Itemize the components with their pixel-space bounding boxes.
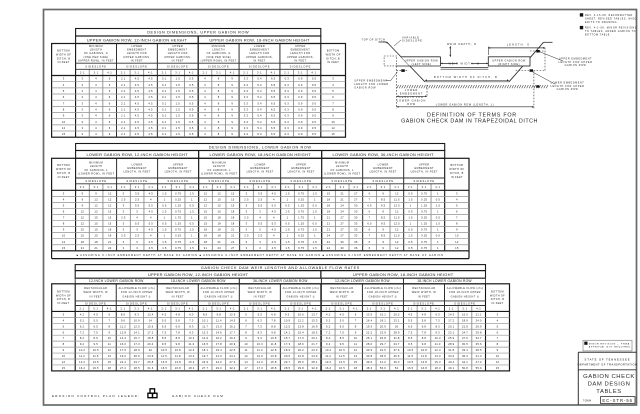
svg-text:20.2: 20.2 bbox=[394, 312, 400, 316]
svg-text:EROSION CONTROL PLAN LEGEND:: EROSION CONTROL PLAN LEGEND: bbox=[52, 394, 140, 398]
svg-text:4: 4 bbox=[95, 114, 97, 118]
svg-text:11: 11 bbox=[354, 342, 357, 346]
svg-text:1.5: 1.5 bbox=[162, 191, 167, 195]
svg-text:FOR 18-INCH UPPER: FOR 18-INCH UPPER bbox=[367, 291, 399, 294]
svg-text:8: 8 bbox=[245, 330, 247, 334]
svg-text:SIDESLOPE: SIDESLOPE bbox=[290, 64, 311, 68]
svg-text:9: 9 bbox=[231, 95, 233, 99]
svg-text:DITCH, B: DITCH, B bbox=[326, 57, 340, 60]
svg-text:6: 6 bbox=[109, 107, 111, 111]
svg-text:2:1: 2:1 bbox=[121, 307, 126, 311]
svg-text:13.8: 13.8 bbox=[421, 360, 427, 364]
svg-text:4.5: 4.5 bbox=[135, 107, 140, 111]
svg-text:LOWER: LOWER bbox=[131, 45, 142, 48]
svg-text:4.8: 4.8 bbox=[422, 312, 427, 316]
svg-text:39.6: 39.6 bbox=[366, 360, 372, 364]
svg-text:BOTTOM WIDTH OF DITCH, B: BOTTOM WIDTH OF DITCH, B bbox=[434, 76, 498, 79]
svg-text:2:1: 2:1 bbox=[326, 185, 331, 189]
svg-text:LOWER GABION ROW, 12-INCH GABI: LOWER GABION ROW, 12-INCH GABION HEIGHT bbox=[86, 152, 188, 157]
svg-text:2:1: 2:1 bbox=[326, 307, 331, 311]
svg-text:4.5: 4.5 bbox=[149, 246, 154, 250]
svg-text:18.1: 18.1 bbox=[202, 348, 208, 352]
svg-text:4:1: 4:1 bbox=[271, 185, 276, 189]
svg-text:4.5: 4.5 bbox=[135, 101, 140, 105]
svg-text:9: 9 bbox=[332, 114, 334, 118]
svg-text:MINIMUM: MINIMUM bbox=[89, 45, 103, 48]
svg-text:3.3: 3.3 bbox=[244, 132, 249, 136]
svg-text:6: 6 bbox=[369, 240, 371, 244]
svg-text:MINOR REVISION -- FHWA: MINOR REVISION -- FHWA bbox=[589, 342, 630, 345]
svg-text:6: 6 bbox=[369, 228, 371, 232]
svg-text:11.5: 11.5 bbox=[394, 216, 400, 220]
svg-text:3:1: 3:1 bbox=[462, 307, 467, 311]
svg-text:3: 3 bbox=[63, 77, 65, 81]
svg-text:6.3: 6.3 bbox=[258, 318, 263, 322]
svg-text:9: 9 bbox=[497, 348, 499, 352]
svg-text:0.9: 0.9 bbox=[298, 132, 303, 136]
svg-text:BOTTOM TABLE.: BOTTOM TABLE. bbox=[585, 34, 611, 37]
svg-text:24: 24 bbox=[217, 246, 221, 250]
svg-text:29.0: 29.0 bbox=[216, 366, 222, 370]
svg-text:9.3: 9.3 bbox=[435, 330, 440, 334]
svg-text:14.1: 14.1 bbox=[284, 330, 290, 334]
svg-text:0.1: 0.1 bbox=[162, 114, 167, 118]
svg-text:21.8: 21.8 bbox=[298, 354, 304, 358]
svg-text:4:1: 4:1 bbox=[271, 307, 276, 311]
svg-text:12: 12 bbox=[395, 191, 399, 195]
svg-text:11: 11 bbox=[108, 342, 111, 346]
svg-text:8: 8 bbox=[218, 89, 220, 93]
svg-text:6.5: 6.5 bbox=[271, 101, 276, 105]
svg-text:3:1: 3:1 bbox=[257, 71, 262, 75]
svg-text:16.8: 16.8 bbox=[421, 366, 427, 370]
svg-text:4.5: 4.5 bbox=[148, 83, 153, 87]
svg-text:12: 12 bbox=[244, 354, 248, 358]
svg-text:4: 4 bbox=[204, 77, 206, 81]
svg-text:4: 4 bbox=[204, 101, 206, 105]
svg-text:1: 1 bbox=[437, 210, 439, 214]
svg-text:2:1: 2:1 bbox=[244, 307, 249, 311]
svg-text:23.3: 23.3 bbox=[312, 348, 318, 352]
svg-text:0.5: 0.5 bbox=[313, 222, 318, 226]
svg-text:(RIGHT SIDE): (RIGHT SIDE) bbox=[498, 63, 520, 66]
svg-text:9.5: 9.5 bbox=[162, 342, 167, 346]
svg-text:0.5: 0.5 bbox=[313, 203, 318, 207]
svg-text:15.1: 15.1 bbox=[380, 312, 386, 316]
svg-text:25.9: 25.9 bbox=[448, 336, 454, 340]
svg-text:7.5: 7.5 bbox=[340, 330, 345, 334]
svg-text:5: 5 bbox=[245, 312, 247, 316]
svg-text:4: 4 bbox=[95, 126, 97, 130]
svg-text:3: 3 bbox=[123, 228, 125, 232]
svg-text:3.3: 3.3 bbox=[244, 83, 249, 87]
svg-text:30: 30 bbox=[354, 203, 358, 207]
svg-text:27: 27 bbox=[354, 191, 358, 195]
svg-text:0.5: 0.5 bbox=[189, 120, 194, 124]
svg-text:1.5: 1.5 bbox=[436, 222, 441, 226]
svg-text:6.8: 6.8 bbox=[271, 312, 276, 316]
svg-text:10.8: 10.8 bbox=[270, 336, 276, 340]
svg-text:27.2: 27.2 bbox=[120, 366, 126, 370]
svg-text:SIDESLOPE: SIDESLOPE bbox=[126, 64, 147, 68]
svg-text:4: 4 bbox=[136, 216, 138, 220]
svg-text:■ ASSUMING 9-INCH EMBEDMENT DE: ■ ASSUMING 9-INCH EMBEDMENT DEPTH AT BAS… bbox=[199, 254, 321, 257]
svg-text:5.4: 5.4 bbox=[257, 89, 262, 93]
svg-text:2.5: 2.5 bbox=[258, 234, 263, 238]
svg-text:EMBEDMENT: EMBEDMENT bbox=[291, 49, 311, 52]
svg-text:LENGTH, IN FEET: LENGTH, IN FEET bbox=[247, 171, 274, 174]
svg-text:11.5: 11.5 bbox=[161, 354, 167, 358]
svg-text:0.75: 0.75 bbox=[421, 210, 427, 214]
svg-text:WEIR WIDTH, W: WEIR WIDTH, W bbox=[330, 291, 355, 294]
svg-text:23.1: 23.1 bbox=[448, 330, 454, 334]
svg-text:3:1: 3:1 bbox=[298, 307, 303, 311]
svg-text:6: 6 bbox=[456, 210, 458, 214]
svg-text:12-INCH LOWER GABION ROW: 12-INCH LOWER GABION ROW bbox=[335, 279, 390, 283]
svg-text:25.0: 25.0 bbox=[298, 360, 304, 364]
svg-text:5.8: 5.8 bbox=[176, 318, 181, 322]
svg-text:12-INCH LOWER GABION ROW: 12-INCH LOWER GABION ROW bbox=[89, 279, 144, 283]
svg-text:18: 18 bbox=[217, 228, 221, 232]
svg-text:1: 1 bbox=[287, 216, 289, 220]
svg-text:3:1: 3:1 bbox=[93, 71, 98, 75]
svg-text:3: 3 bbox=[259, 246, 261, 250]
svg-text:0.5: 0.5 bbox=[190, 222, 195, 226]
svg-text:2.5: 2.5 bbox=[244, 197, 249, 201]
svg-text:LENGTH, IN FEET: LENGTH, IN FEET bbox=[288, 171, 315, 174]
svg-text:11.3: 11.3 bbox=[435, 342, 441, 346]
svg-text:19.2: 19.2 bbox=[120, 354, 126, 358]
svg-text:DITCH, B: DITCH, B bbox=[491, 298, 505, 301]
svg-text:15.3: 15.3 bbox=[435, 360, 441, 364]
svg-text:4: 4 bbox=[204, 126, 206, 130]
svg-text:1: 1 bbox=[287, 234, 289, 238]
svg-text:IN FEET: IN FEET bbox=[254, 295, 266, 298]
svg-text:IN FEET: IN FEET bbox=[90, 295, 102, 298]
svg-text:0.5: 0.5 bbox=[189, 114, 194, 118]
svg-text:4.5: 4.5 bbox=[148, 77, 153, 81]
svg-text:9: 9 bbox=[382, 210, 384, 214]
svg-text:2.1: 2.1 bbox=[121, 126, 126, 130]
svg-text:3:1: 3:1 bbox=[134, 71, 139, 75]
svg-text:12.5: 12.5 bbox=[394, 222, 400, 226]
svg-text:4: 4 bbox=[259, 216, 261, 220]
svg-text:5.5: 5.5 bbox=[135, 222, 140, 226]
svg-text:7: 7 bbox=[456, 216, 458, 220]
svg-text:4.5: 4.5 bbox=[148, 101, 153, 105]
svg-text:15: 15 bbox=[204, 222, 208, 226]
svg-text:14.5: 14.5 bbox=[229, 318, 235, 322]
svg-text:9: 9 bbox=[231, 83, 233, 87]
svg-text:8: 8 bbox=[109, 324, 111, 328]
svg-text:9.2: 9.2 bbox=[80, 342, 85, 346]
svg-text:0.5: 0.5 bbox=[436, 216, 441, 220]
svg-text:1: 1 bbox=[191, 216, 193, 220]
svg-text:18: 18 bbox=[327, 210, 331, 214]
svg-text:13.5: 13.5 bbox=[366, 312, 372, 316]
svg-text:15.3: 15.3 bbox=[188, 360, 194, 364]
svg-text:IN FEET: IN FEET bbox=[172, 59, 184, 62]
svg-text:17.6: 17.6 bbox=[120, 348, 126, 352]
svg-text:1.5: 1.5 bbox=[176, 89, 181, 93]
svg-text:21: 21 bbox=[231, 234, 235, 238]
svg-text:2:1: 2:1 bbox=[202, 71, 207, 75]
svg-text:9.5: 9.5 bbox=[381, 222, 386, 226]
svg-text:0.75: 0.75 bbox=[175, 240, 181, 244]
svg-text:4.5: 4.5 bbox=[94, 312, 99, 316]
svg-text:12: 12 bbox=[455, 240, 459, 244]
svg-text:4.5: 4.5 bbox=[149, 228, 154, 232]
svg-text:16.5: 16.5 bbox=[339, 366, 345, 370]
svg-text:6: 6 bbox=[63, 95, 65, 99]
svg-text:20.5: 20.5 bbox=[134, 354, 140, 358]
svg-text:6: 6 bbox=[109, 95, 111, 99]
svg-text:36: 36 bbox=[354, 246, 358, 250]
svg-text:1.5: 1.5 bbox=[176, 77, 181, 81]
svg-text:11: 11 bbox=[245, 348, 248, 352]
svg-text:4.2: 4.2 bbox=[326, 312, 331, 316]
svg-text:0.5: 0.5 bbox=[312, 107, 317, 111]
svg-text:13: 13 bbox=[108, 354, 112, 358]
svg-text:(UPPER ROW), IN FEET: (UPPER ROW), IN FEET bbox=[201, 59, 237, 62]
svg-text:18: 18 bbox=[217, 234, 221, 238]
svg-text:46.3: 46.3 bbox=[394, 360, 400, 364]
svg-text:3: 3 bbox=[82, 120, 84, 124]
svg-text:LOWER: LOWER bbox=[378, 163, 389, 166]
svg-text:3:1: 3:1 bbox=[216, 307, 221, 311]
svg-text:(LOWER ROW), IN FEET: (LOWER ROW), IN FEET bbox=[324, 172, 361, 175]
svg-text:10.3: 10.3 bbox=[435, 336, 441, 340]
svg-text:20.9: 20.9 bbox=[229, 342, 235, 346]
svg-text:5: 5 bbox=[456, 203, 458, 207]
svg-text:32.9: 32.9 bbox=[312, 366, 318, 370]
svg-text:24: 24 bbox=[327, 234, 331, 238]
svg-text:6.5: 6.5 bbox=[271, 126, 276, 130]
svg-text:EMBEDMENT: EMBEDMENT bbox=[250, 167, 270, 170]
svg-text:26.8: 26.8 bbox=[380, 336, 386, 340]
svg-text:4.5: 4.5 bbox=[135, 120, 140, 124]
svg-text:0.5: 0.5 bbox=[408, 240, 413, 244]
svg-text:10.5: 10.5 bbox=[339, 348, 345, 352]
svg-text:18: 18 bbox=[217, 222, 221, 226]
svg-text:1: 1 bbox=[314, 197, 316, 201]
svg-text:12: 12 bbox=[108, 197, 112, 201]
svg-text:15: 15 bbox=[455, 246, 459, 250]
svg-text:6: 6 bbox=[369, 191, 371, 195]
svg-text:GABION HEIGHT ①: GABION HEIGHT ① bbox=[122, 294, 151, 298]
svg-text:4:1: 4:1 bbox=[107, 185, 112, 189]
svg-text:9: 9 bbox=[382, 228, 384, 232]
svg-text:0.25: 0.25 bbox=[298, 234, 304, 238]
svg-text:IN FEET: IN FEET bbox=[327, 61, 339, 64]
svg-text:3: 3 bbox=[82, 126, 84, 130]
svg-text:15: 15 bbox=[108, 222, 112, 226]
svg-text:3: 3 bbox=[246, 222, 248, 226]
svg-text:50.8: 50.8 bbox=[462, 366, 468, 370]
svg-text:4:1: 4:1 bbox=[230, 71, 235, 75]
svg-text:8: 8 bbox=[63, 107, 65, 111]
svg-text:4.5: 4.5 bbox=[148, 126, 153, 130]
svg-text:21: 21 bbox=[327, 216, 331, 220]
svg-text:UPPER GABIONS,: UPPER GABIONS, bbox=[287, 56, 314, 59]
svg-text:4: 4 bbox=[497, 318, 499, 322]
svg-text:3: 3 bbox=[82, 95, 84, 99]
svg-text:7: 7 bbox=[63, 336, 65, 340]
svg-text:5.5: 5.5 bbox=[340, 318, 345, 322]
svg-text:24.9: 24.9 bbox=[312, 354, 318, 358]
svg-text:1.5: 1.5 bbox=[190, 240, 195, 244]
svg-text:2.1: 2.1 bbox=[121, 107, 126, 111]
svg-text:10: 10 bbox=[455, 234, 459, 238]
svg-text:(ONE PER SIDE): (ONE PER SIDE) bbox=[83, 56, 108, 59]
svg-text:1.5: 1.5 bbox=[285, 191, 290, 195]
svg-text:8: 8 bbox=[218, 107, 220, 111]
svg-text:12: 12 bbox=[395, 228, 399, 232]
svg-text:21: 21 bbox=[327, 228, 331, 232]
svg-text:0.75: 0.75 bbox=[421, 246, 427, 250]
svg-text:11.5: 11.5 bbox=[339, 354, 345, 358]
svg-text:8.3: 8.3 bbox=[258, 330, 263, 334]
svg-text:1: 1 bbox=[164, 216, 166, 220]
svg-text:3: 3 bbox=[63, 191, 65, 195]
svg-text:0.25: 0.25 bbox=[421, 216, 427, 220]
svg-text:4: 4 bbox=[63, 83, 65, 87]
svg-text:5.5: 5.5 bbox=[162, 318, 167, 322]
svg-text:3:1: 3:1 bbox=[134, 307, 139, 311]
svg-text:■ ASSUMING 9-INCH EMBEDMENT DE: ■ ASSUMING 9-INCH EMBEDMENT DEPTH AT BAS… bbox=[322, 254, 444, 257]
svg-text:18: 18 bbox=[204, 228, 208, 232]
svg-text:4.5: 4.5 bbox=[272, 228, 277, 232]
svg-text:22: 22 bbox=[149, 348, 153, 352]
svg-text:12.8: 12.8 bbox=[120, 330, 126, 334]
svg-text:6: 6 bbox=[332, 95, 334, 99]
svg-text:3:1: 3:1 bbox=[340, 185, 345, 189]
svg-text:1: 1 bbox=[437, 191, 439, 195]
svg-text:4: 4 bbox=[95, 120, 97, 124]
svg-text:7: 7 bbox=[332, 101, 334, 105]
svg-text:1.5: 1.5 bbox=[285, 246, 290, 250]
svg-text:6.5: 6.5 bbox=[271, 107, 276, 111]
svg-text:19.3: 19.3 bbox=[366, 324, 372, 328]
svg-text:0.75: 0.75 bbox=[421, 191, 427, 195]
svg-text:6.3: 6.3 bbox=[435, 312, 440, 316]
svg-text:15: 15 bbox=[217, 197, 221, 201]
svg-text:10: 10 bbox=[108, 336, 112, 340]
svg-text:1: 1 bbox=[437, 246, 439, 250]
svg-text:4.5: 4.5 bbox=[148, 95, 153, 99]
svg-text:LOWER GABION ROW, 36-INCH GABI: LOWER GABION ROW, 36-INCH GABION HEIGHT bbox=[333, 152, 435, 157]
svg-text:28.9: 28.9 bbox=[448, 342, 454, 346]
svg-text:IN FEET: IN FEET bbox=[172, 295, 184, 298]
svg-text:23.7: 23.7 bbox=[284, 360, 290, 364]
svg-text:21: 21 bbox=[217, 240, 221, 244]
svg-text:1.5: 1.5 bbox=[176, 120, 181, 124]
svg-text:LENGTH: LENGTH bbox=[212, 49, 225, 52]
svg-text:DITCH, B: DITCH, B bbox=[57, 172, 71, 175]
svg-text:4:1: 4:1 bbox=[353, 185, 358, 189]
svg-text:2.5: 2.5 bbox=[135, 234, 140, 238]
svg-text:19.3: 19.3 bbox=[229, 336, 235, 340]
svg-text:UPPER: UPPER bbox=[295, 45, 306, 48]
svg-text:18: 18 bbox=[81, 240, 85, 244]
svg-text:11.8: 11.8 bbox=[271, 342, 277, 346]
svg-text:26.8: 26.8 bbox=[147, 360, 153, 364]
svg-text:12: 12 bbox=[108, 191, 112, 195]
svg-text:9: 9 bbox=[231, 101, 233, 105]
svg-text:10.9: 10.9 bbox=[134, 318, 140, 322]
svg-text:3:1: 3:1 bbox=[339, 307, 344, 311]
svg-text:0.75: 0.75 bbox=[298, 228, 304, 232]
svg-text:5.5: 5.5 bbox=[94, 318, 99, 322]
svg-text:8: 8 bbox=[218, 126, 220, 130]
svg-text:0.3: 0.3 bbox=[285, 126, 290, 130]
svg-text:50.0: 50.0 bbox=[380, 366, 386, 370]
svg-text:15: 15 bbox=[217, 203, 221, 207]
svg-text:1.25: 1.25 bbox=[298, 222, 304, 226]
svg-text:13.8: 13.8 bbox=[270, 354, 276, 358]
svg-text:16.1: 16.1 bbox=[229, 324, 235, 328]
svg-text:0.75: 0.75 bbox=[298, 210, 304, 214]
svg-text:LOWER: LOWER bbox=[255, 163, 266, 166]
svg-text:9.3: 9.3 bbox=[135, 312, 140, 316]
svg-text:UPPER: UPPER bbox=[296, 163, 307, 166]
svg-text:EMBEDMENT: EMBEDMENT bbox=[250, 49, 270, 52]
svg-text:8: 8 bbox=[218, 101, 220, 105]
svg-text:5.5: 5.5 bbox=[408, 318, 413, 322]
svg-text:6.3: 6.3 bbox=[189, 312, 194, 316]
svg-text:20.4: 20.4 bbox=[147, 342, 153, 346]
svg-text:4.8: 4.8 bbox=[176, 312, 181, 316]
svg-text:1.5: 1.5 bbox=[176, 101, 181, 105]
svg-text:SIDESLOPE: SIDESLOPE bbox=[85, 64, 106, 68]
svg-text:21: 21 bbox=[340, 191, 344, 195]
svg-text:0.5: 0.5 bbox=[436, 234, 441, 238]
svg-text:3: 3 bbox=[136, 246, 138, 250]
svg-text:15: 15 bbox=[108, 210, 112, 214]
svg-text:10.6: 10.6 bbox=[298, 312, 304, 316]
svg-text:9.3: 9.3 bbox=[285, 312, 290, 316]
svg-text:14.6: 14.6 bbox=[216, 330, 222, 334]
svg-text:4: 4 bbox=[204, 95, 206, 99]
svg-text:SIDESLOPE: SIDESLOPE bbox=[208, 301, 229, 305]
svg-text:4: 4 bbox=[273, 234, 275, 238]
svg-text:22.4: 22.4 bbox=[120, 360, 126, 364]
svg-text:3:1: 3:1 bbox=[217, 185, 222, 189]
svg-text:LOWER GABION ROW (LENGTH, L): LOWER GABION ROW (LENGTH, L) bbox=[436, 103, 494, 106]
svg-text:8.8: 8.8 bbox=[176, 336, 181, 340]
svg-text:3: 3 bbox=[123, 240, 125, 244]
svg-text:DESIGN DIMENSIONS, LOWER GABIO: DESIGN DIMENSIONS, LOWER GABION ROW bbox=[209, 145, 312, 149]
svg-text:SHEET, REVISED TABLES, MISC.: SHEET, REVISED TABLES, MISC. bbox=[585, 17, 638, 20]
svg-text:12: 12 bbox=[331, 126, 335, 130]
svg-text:5.8: 5.8 bbox=[422, 318, 427, 322]
svg-text:0.5: 0.5 bbox=[189, 77, 194, 81]
svg-text:9: 9 bbox=[231, 126, 233, 130]
svg-text:9: 9 bbox=[109, 330, 111, 334]
svg-text:1.5: 1.5 bbox=[313, 210, 318, 214]
svg-text:10.5: 10.5 bbox=[407, 348, 413, 352]
svg-text:BOTTOM: BOTTOM bbox=[327, 50, 340, 53]
svg-text:WEIR WIDTH, W: WEIR WIDTH, W bbox=[412, 291, 437, 294]
svg-text:21: 21 bbox=[231, 228, 235, 232]
svg-text:6: 6 bbox=[355, 312, 357, 316]
svg-text:6.2: 6.2 bbox=[80, 324, 85, 328]
svg-text:10.5: 10.5 bbox=[93, 348, 99, 352]
svg-text:GABION CHECK DAM: GABION CHECK DAM bbox=[172, 394, 224, 398]
svg-text:8.5: 8.5 bbox=[94, 336, 99, 340]
svg-text:3: 3 bbox=[82, 89, 84, 93]
svg-text:7: 7 bbox=[63, 216, 65, 220]
